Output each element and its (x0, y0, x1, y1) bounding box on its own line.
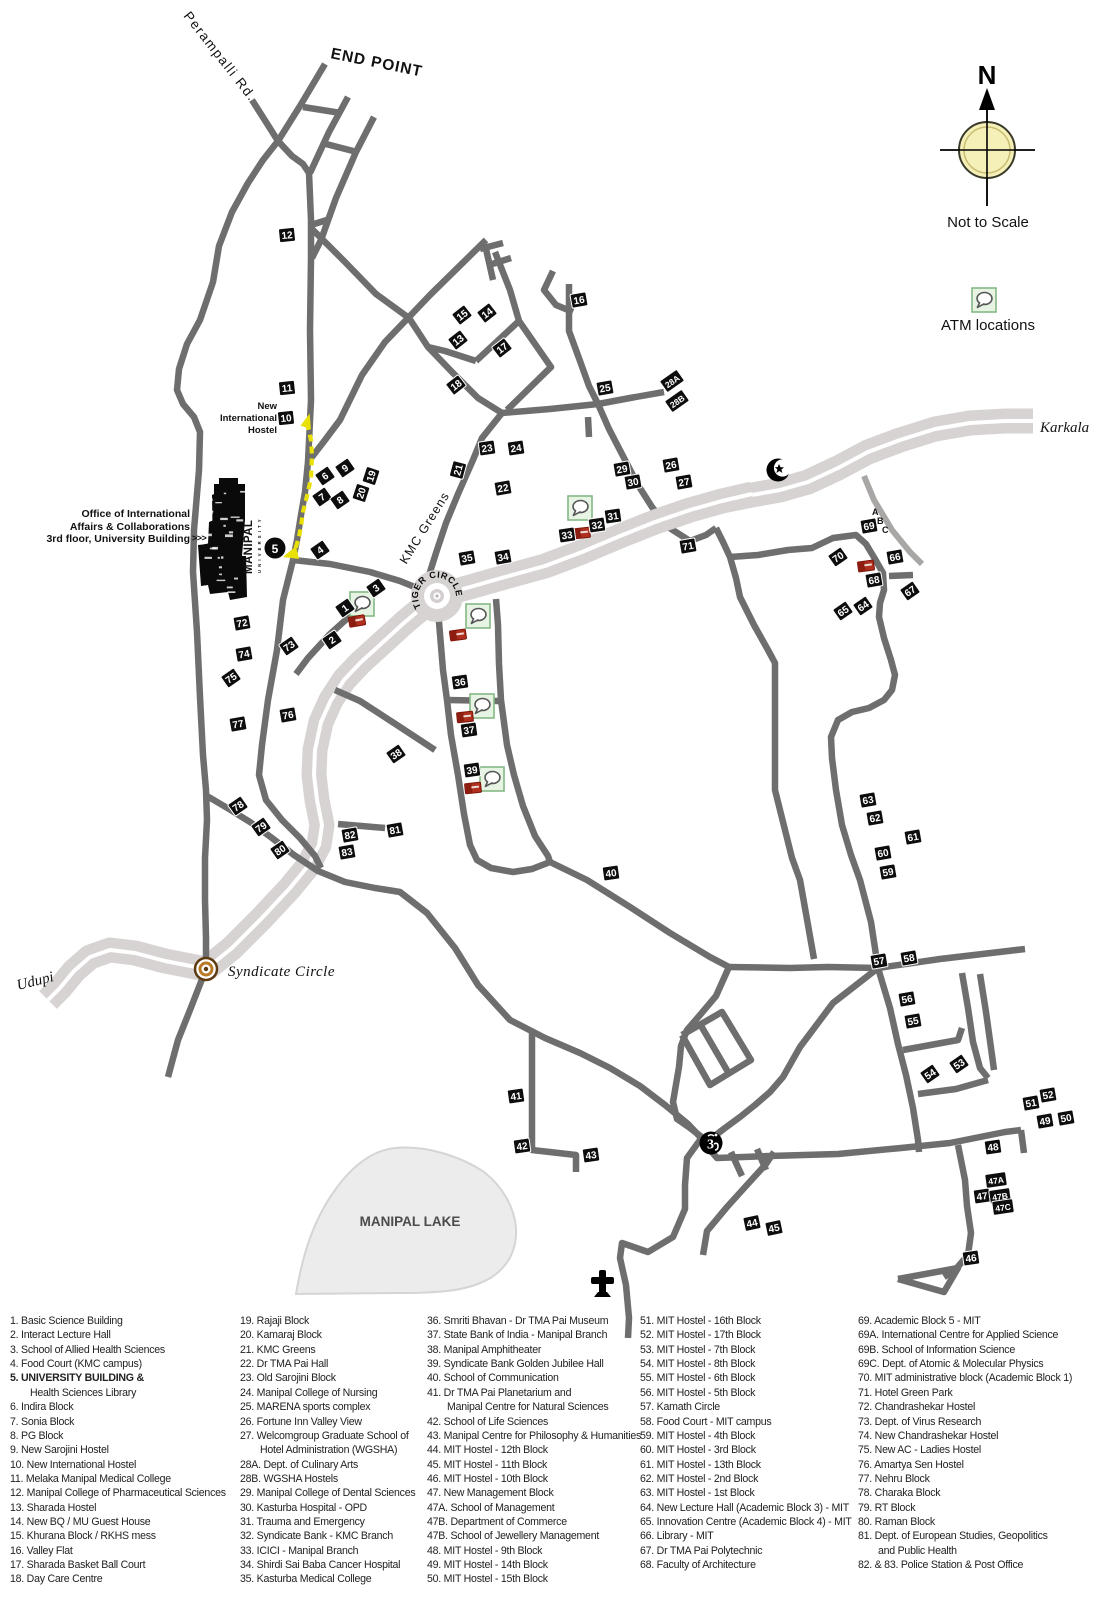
svg-text:23: 23 (481, 443, 494, 456)
svg-text:47C: 47C (995, 1202, 1012, 1214)
svg-text:3: 3 (707, 1138, 714, 1153)
svg-text:43: 43 (585, 1150, 598, 1163)
svg-text:47: 47 (976, 1191, 989, 1204)
svg-text:24: 24 (510, 443, 523, 456)
svg-text:31: 31 (607, 511, 620, 524)
svg-text:11: 11 (281, 383, 293, 395)
svg-text:MANIPAL: MANIPAL (243, 520, 255, 574)
svg-text:Hostel: Hostel (248, 425, 277, 436)
svg-text:5: 5 (272, 542, 279, 556)
svg-text:Not to Scale: Not to Scale (947, 214, 1029, 231)
svg-text:40: 40 (605, 868, 618, 881)
svg-text:>>>: >>> (192, 533, 207, 543)
svg-text:39: 39 (466, 765, 479, 778)
svg-text:10: 10 (280, 413, 293, 425)
svg-text:37: 37 (463, 725, 476, 738)
svg-text:ATM locations: ATM locations (941, 317, 1035, 334)
svg-text:3rd floor, University Building: 3rd floor, University Building (46, 533, 190, 545)
svg-text:N: N (978, 60, 997, 90)
svg-text:U N I V E R S I T Y: U N I V E R S I T Y (257, 518, 262, 573)
svg-text:Affairs & Collaborations: Affairs & Collaborations (70, 521, 190, 533)
svg-text:33: 33 (561, 530, 574, 543)
svg-text:Office of International: Office of International (81, 508, 190, 520)
svg-text:46: 46 (965, 1253, 978, 1266)
svg-text:47A: 47A (988, 1175, 1005, 1187)
svg-text:C: C (882, 525, 889, 535)
svg-text:12: 12 (281, 230, 294, 242)
svg-text:48: 48 (987, 1142, 1000, 1155)
svg-text:42: 42 (516, 1141, 529, 1154)
svg-text:Karkala: Karkala (1039, 420, 1089, 436)
svg-text:MANIPAL LAKE: MANIPAL LAKE (360, 1214, 461, 1229)
svg-text:Syndicate Circle: Syndicate Circle (228, 964, 335, 980)
svg-text:32: 32 (591, 520, 604, 533)
svg-text:New: New (257, 401, 277, 412)
svg-text:36: 36 (454, 677, 467, 690)
svg-text:International: International (220, 413, 277, 424)
svg-text:41: 41 (510, 1091, 523, 1104)
